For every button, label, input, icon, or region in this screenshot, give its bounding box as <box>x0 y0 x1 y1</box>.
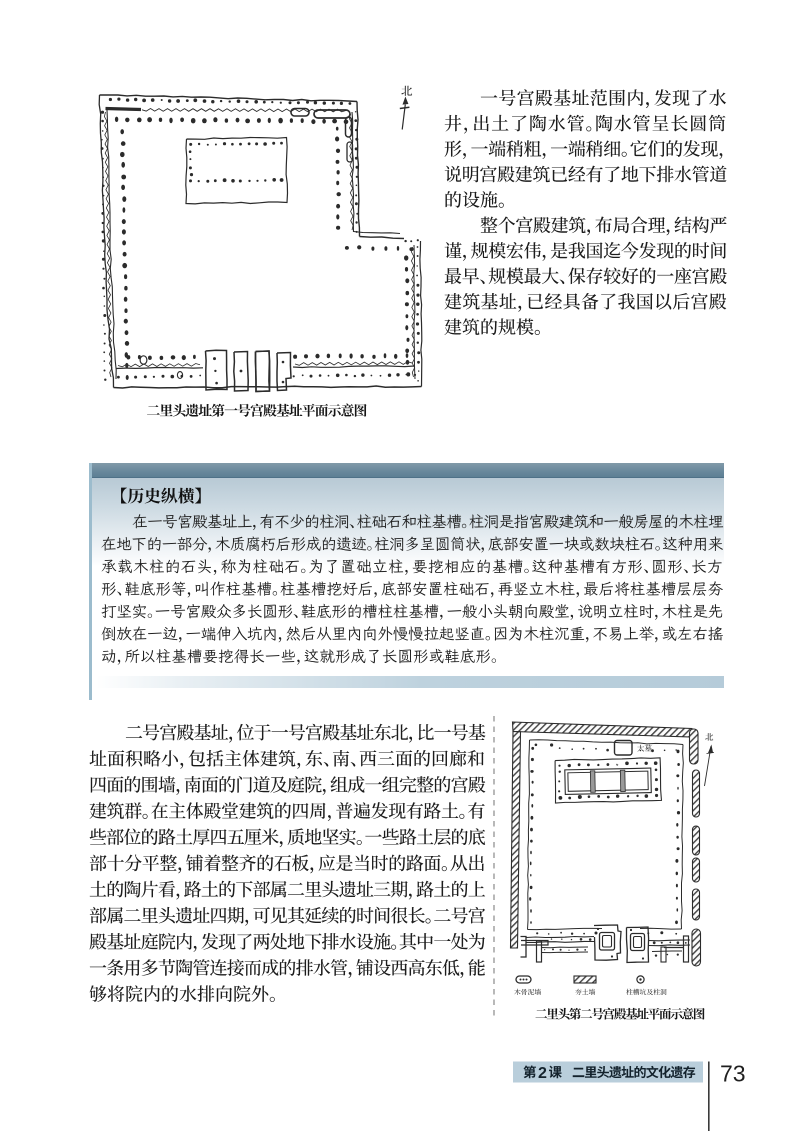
svg-text:73: 73 <box>720 1061 746 1087</box>
svg-text:2: 2 <box>538 1065 547 1082</box>
